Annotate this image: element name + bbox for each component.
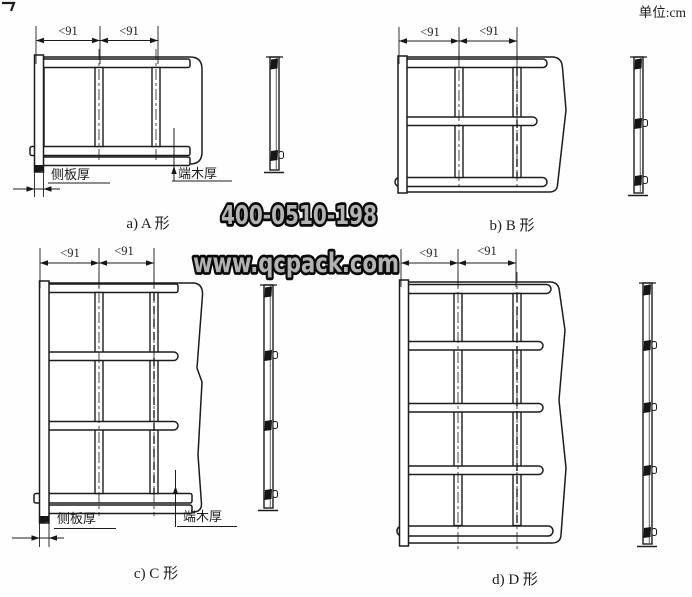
dim-label-c-2: <91 [114, 244, 134, 258]
side-board-thickness-label-a: 侧板厚 [51, 167, 90, 182]
caption-d: d) D 形 [492, 571, 538, 588]
watermark-website: www.qcpack.com [193, 248, 399, 279]
side-board-thickness-label-c: 侧板厚 [57, 511, 96, 526]
dim-label-d-2: <91 [477, 244, 497, 258]
dim-label-a-1: <91 [58, 24, 78, 38]
caption-b: b) B 形 [489, 217, 534, 234]
diagram-canvas: 单位:cm <91 <91 侧板厚 端木厚 a) A 形 <91 <91 b) … [0, 0, 692, 597]
watermark-phone: 400-0510-198 [221, 201, 377, 231]
dim-label-a-2: <91 [119, 24, 139, 38]
end-wood-thickness-label-a: 端木厚 [178, 166, 217, 181]
figure-pallet-frame-types: 单位:cm <91 <91 侧板厚 端木厚 a) A 形 <91 <91 b) … [0, 0, 692, 597]
dim-label-b-2: <91 [479, 24, 499, 38]
unit-note: 单位:cm [639, 5, 687, 20]
dim-label-b-1: <91 [420, 25, 440, 39]
caption-a: a) A 形 [126, 215, 169, 232]
caption-c: c) C 形 [134, 565, 178, 582]
dim-label-c-1: <91 [60, 246, 80, 260]
dim-label-d-1: <91 [419, 246, 439, 260]
end-wood-thickness-label-c: 端木厚 [183, 509, 222, 524]
